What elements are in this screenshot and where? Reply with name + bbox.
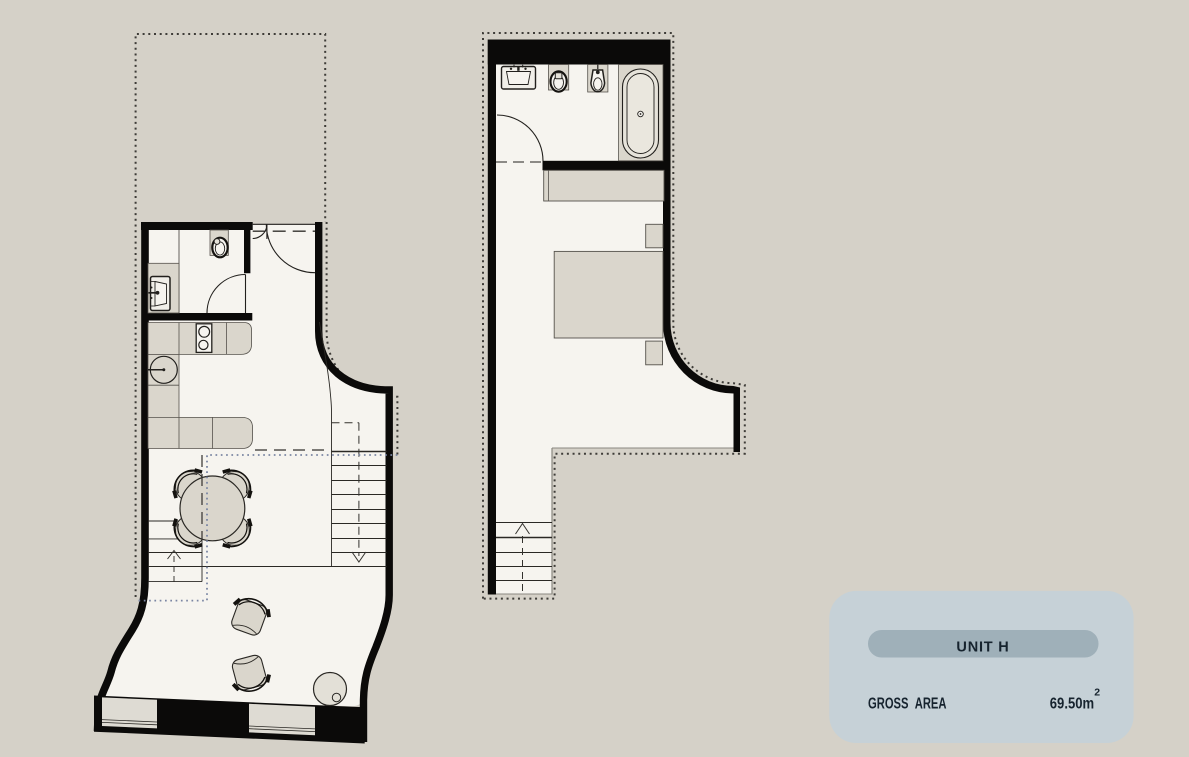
svg-text:2: 2 (1094, 687, 1100, 699)
svg-text:GROSS AREA: GROSS AREA (868, 695, 947, 712)
svg-text:UNIT H: UNIT H (956, 640, 1009, 656)
svg-text:69.50m: 69.50m (1050, 695, 1094, 712)
